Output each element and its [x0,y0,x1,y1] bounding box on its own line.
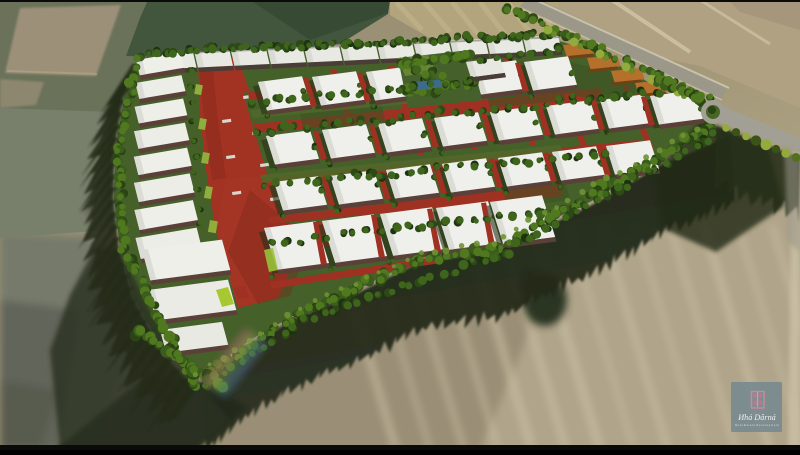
svg-text:Иhá Dârná: Иhá Dârná [737,413,776,422]
svg-text:R e a l E s t a t e D e v e: R e a l E s t a t e D e v e l o p m e n … [735,423,779,427]
